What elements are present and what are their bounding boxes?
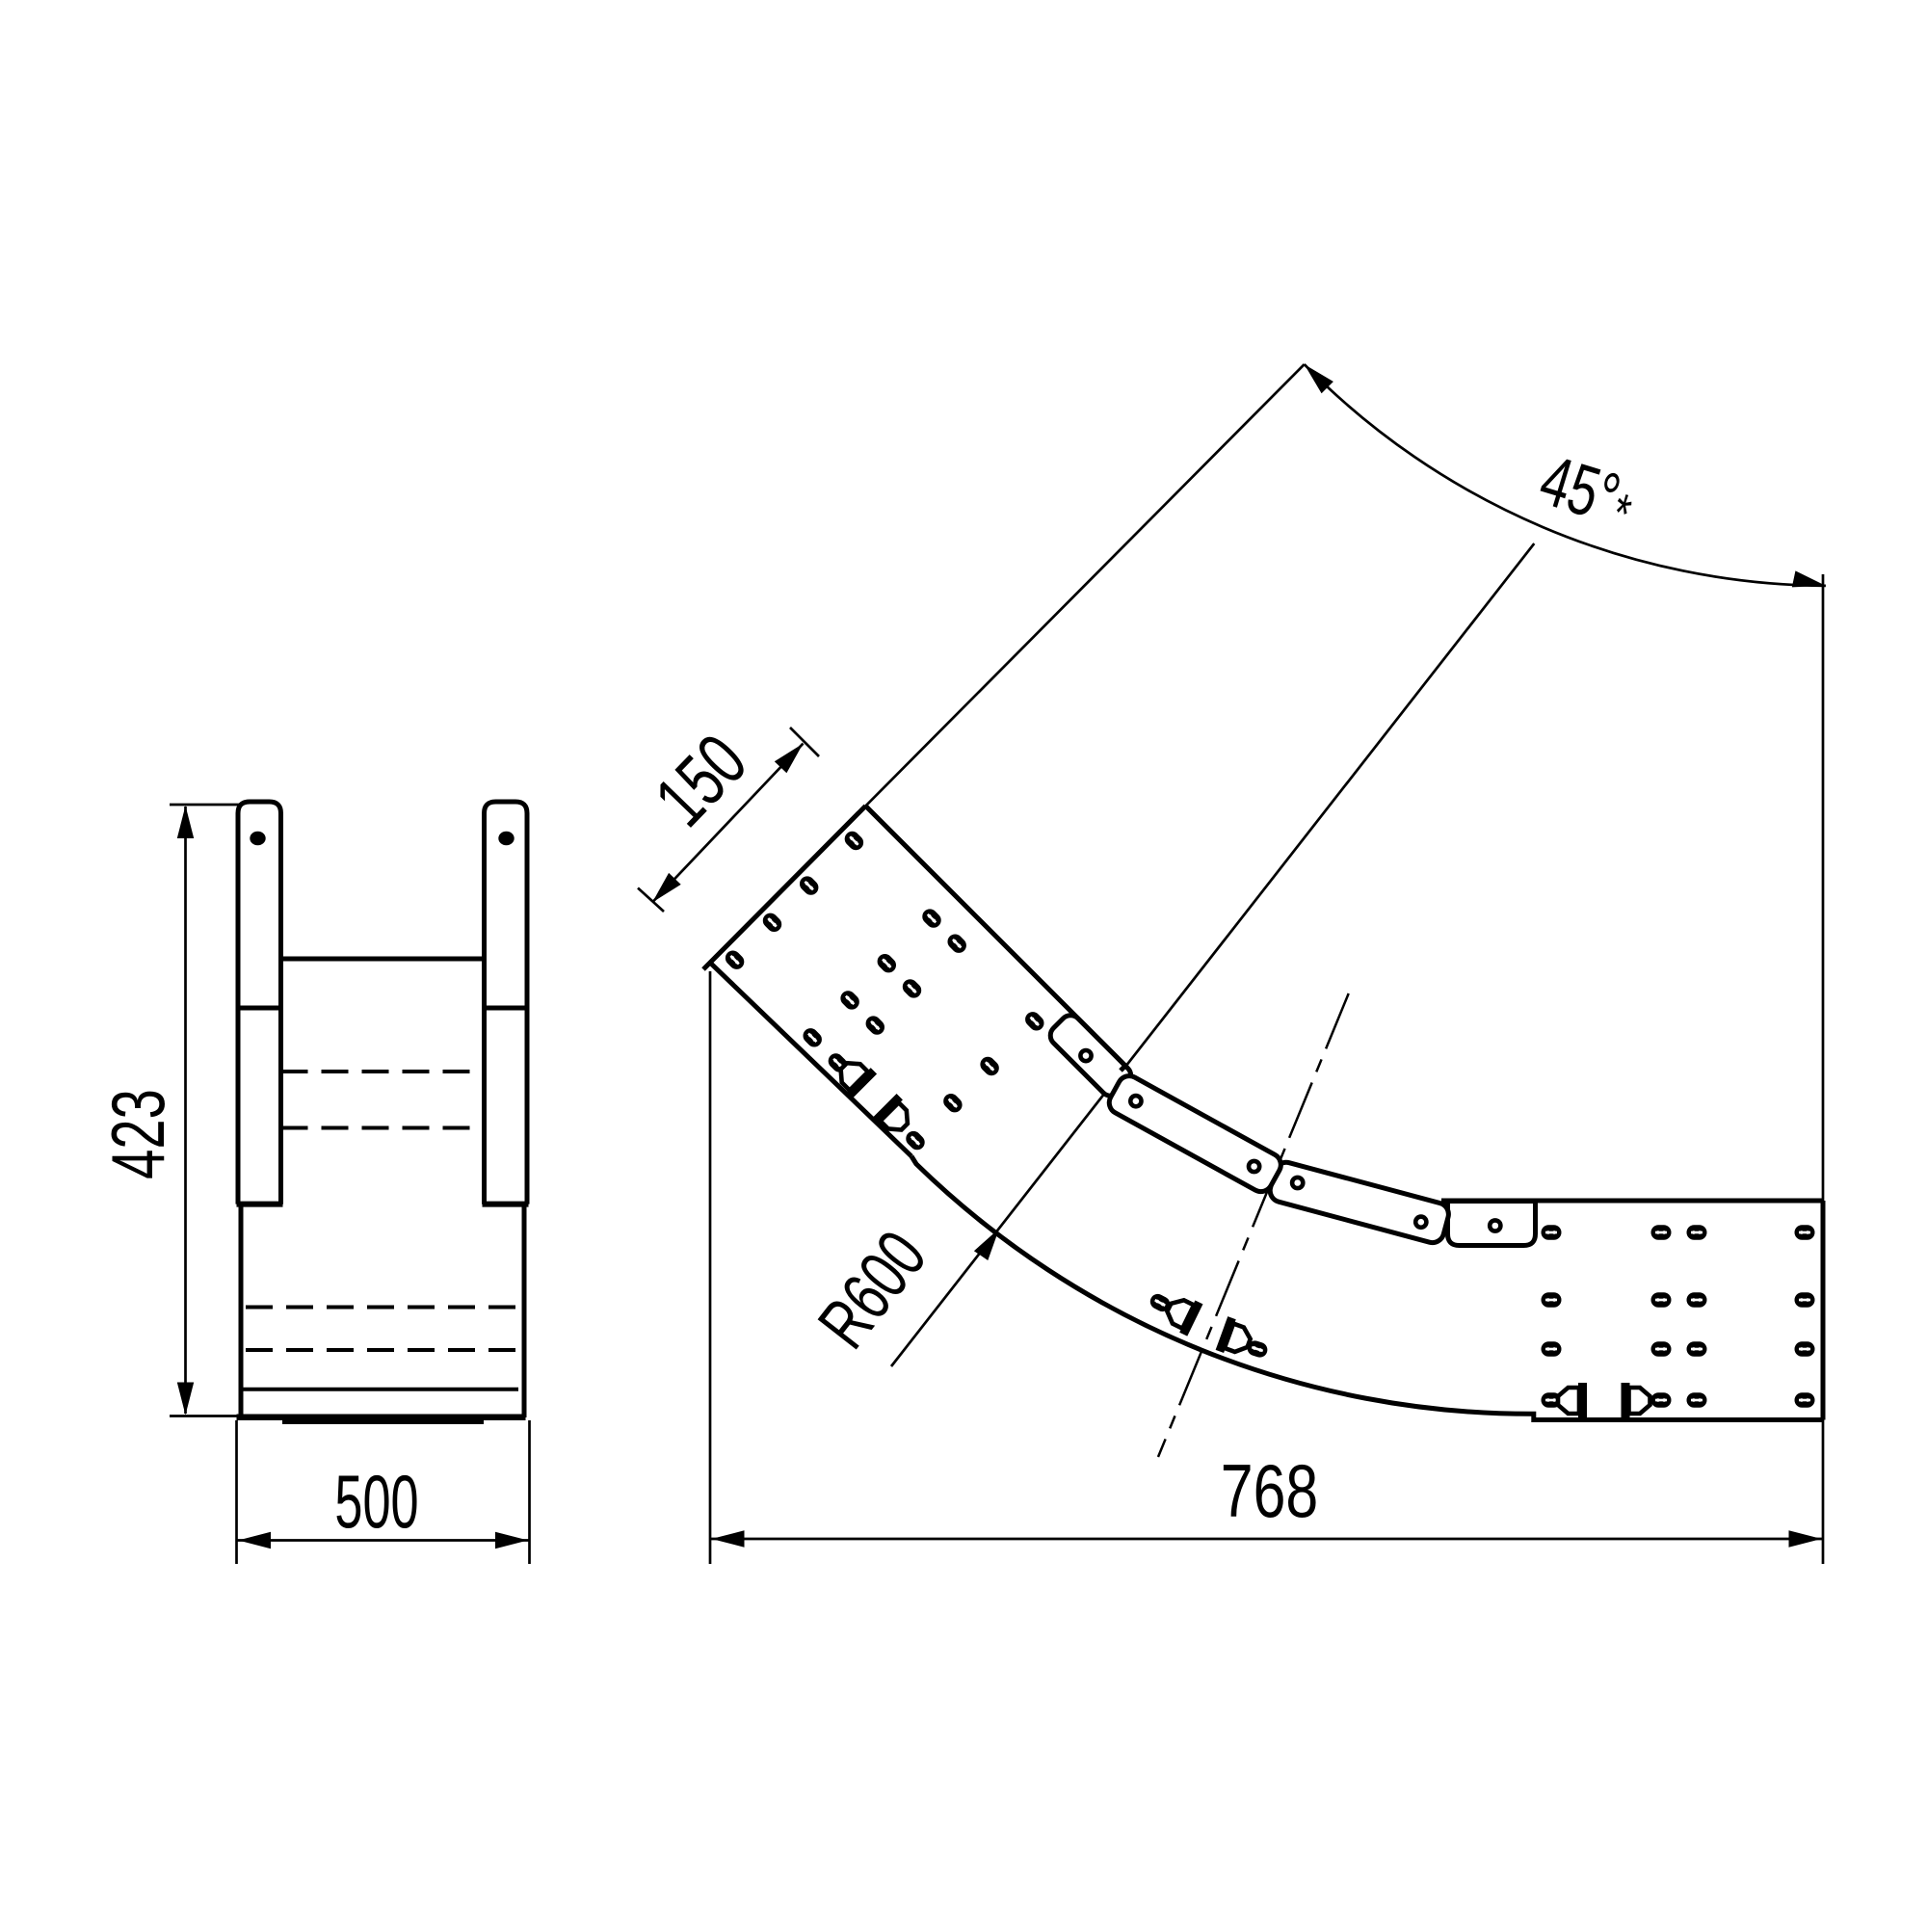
svg-text:768: 768 <box>1221 1449 1319 1533</box>
svg-text:423: 423 <box>96 1089 180 1179</box>
svg-text:500: 500 <box>334 1461 418 1545</box>
